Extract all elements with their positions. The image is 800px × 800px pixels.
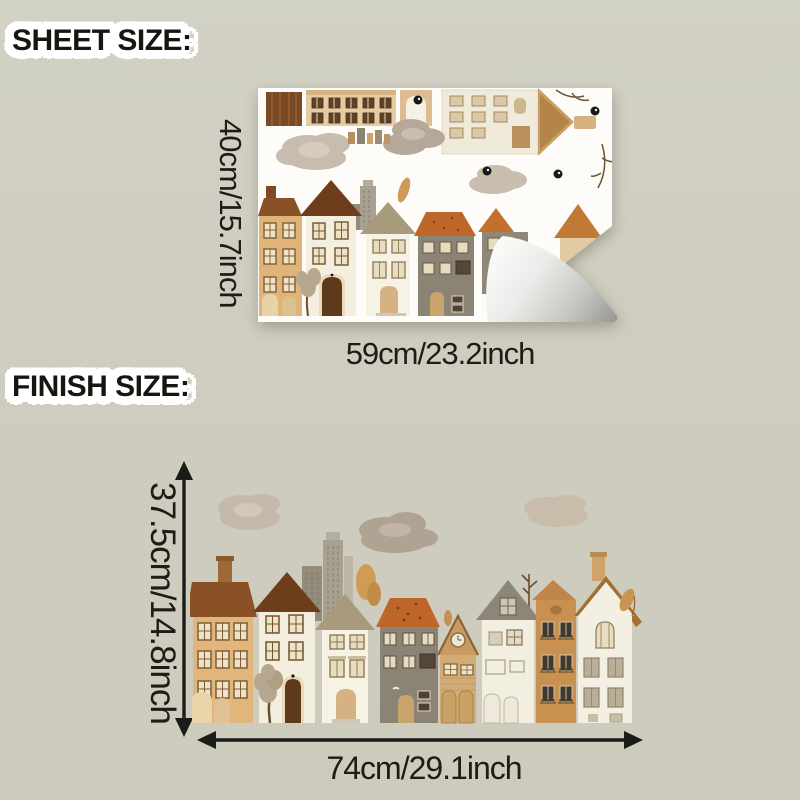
house-tall-white: [574, 552, 642, 723]
house-white-gray-roof: [476, 580, 540, 723]
finish-size-title: FINISH SIZE:: [12, 370, 189, 404]
cloud: [218, 494, 280, 530]
house-gray-orange-roof: [376, 598, 440, 723]
sheet-size-title: SHEET SIZE:: [12, 24, 192, 58]
finished-decal-illustration: [190, 470, 660, 730]
finish-width-label: 74cm/29.1inch: [254, 750, 594, 787]
house-orange-balconies: [532, 580, 576, 723]
cloud: [359, 512, 438, 553]
finish-height-label: 37.5cm/14.8inch: [134, 472, 182, 734]
sticker-piece-wood-door: [266, 92, 302, 126]
sheet-height-label: 40cm/15.7inch: [206, 100, 248, 326]
sticker-sheet-illustration: [256, 86, 620, 326]
house-clock: [438, 616, 478, 723]
product-size-infographic: SHEET SIZE:: [0, 0, 800, 800]
cloud: [524, 495, 588, 527]
house-tan: [190, 556, 257, 723]
sticker-piece-facade: [306, 90, 396, 126]
sheet-width-label: 59cm/23.2inch: [320, 336, 560, 372]
